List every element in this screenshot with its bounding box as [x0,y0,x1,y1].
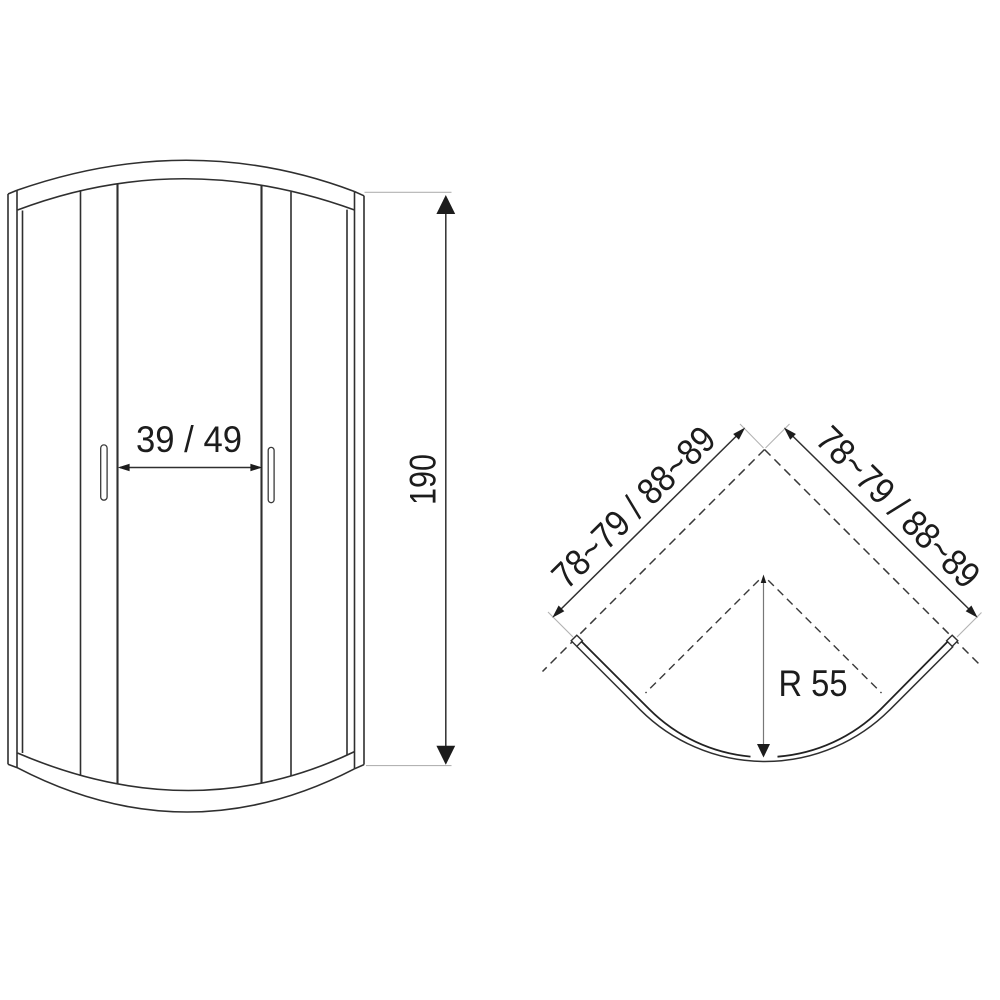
svg-text:78~79 / 88~89: 78~79 / 88~89 [544,418,724,596]
svg-text:190: 190 [403,454,444,505]
svg-text:R 55: R 55 [779,663,848,704]
svg-text:39 / 49: 39 / 49 [136,419,242,460]
svg-text:78~79 / 88~89: 78~79 / 88~89 [808,418,988,596]
